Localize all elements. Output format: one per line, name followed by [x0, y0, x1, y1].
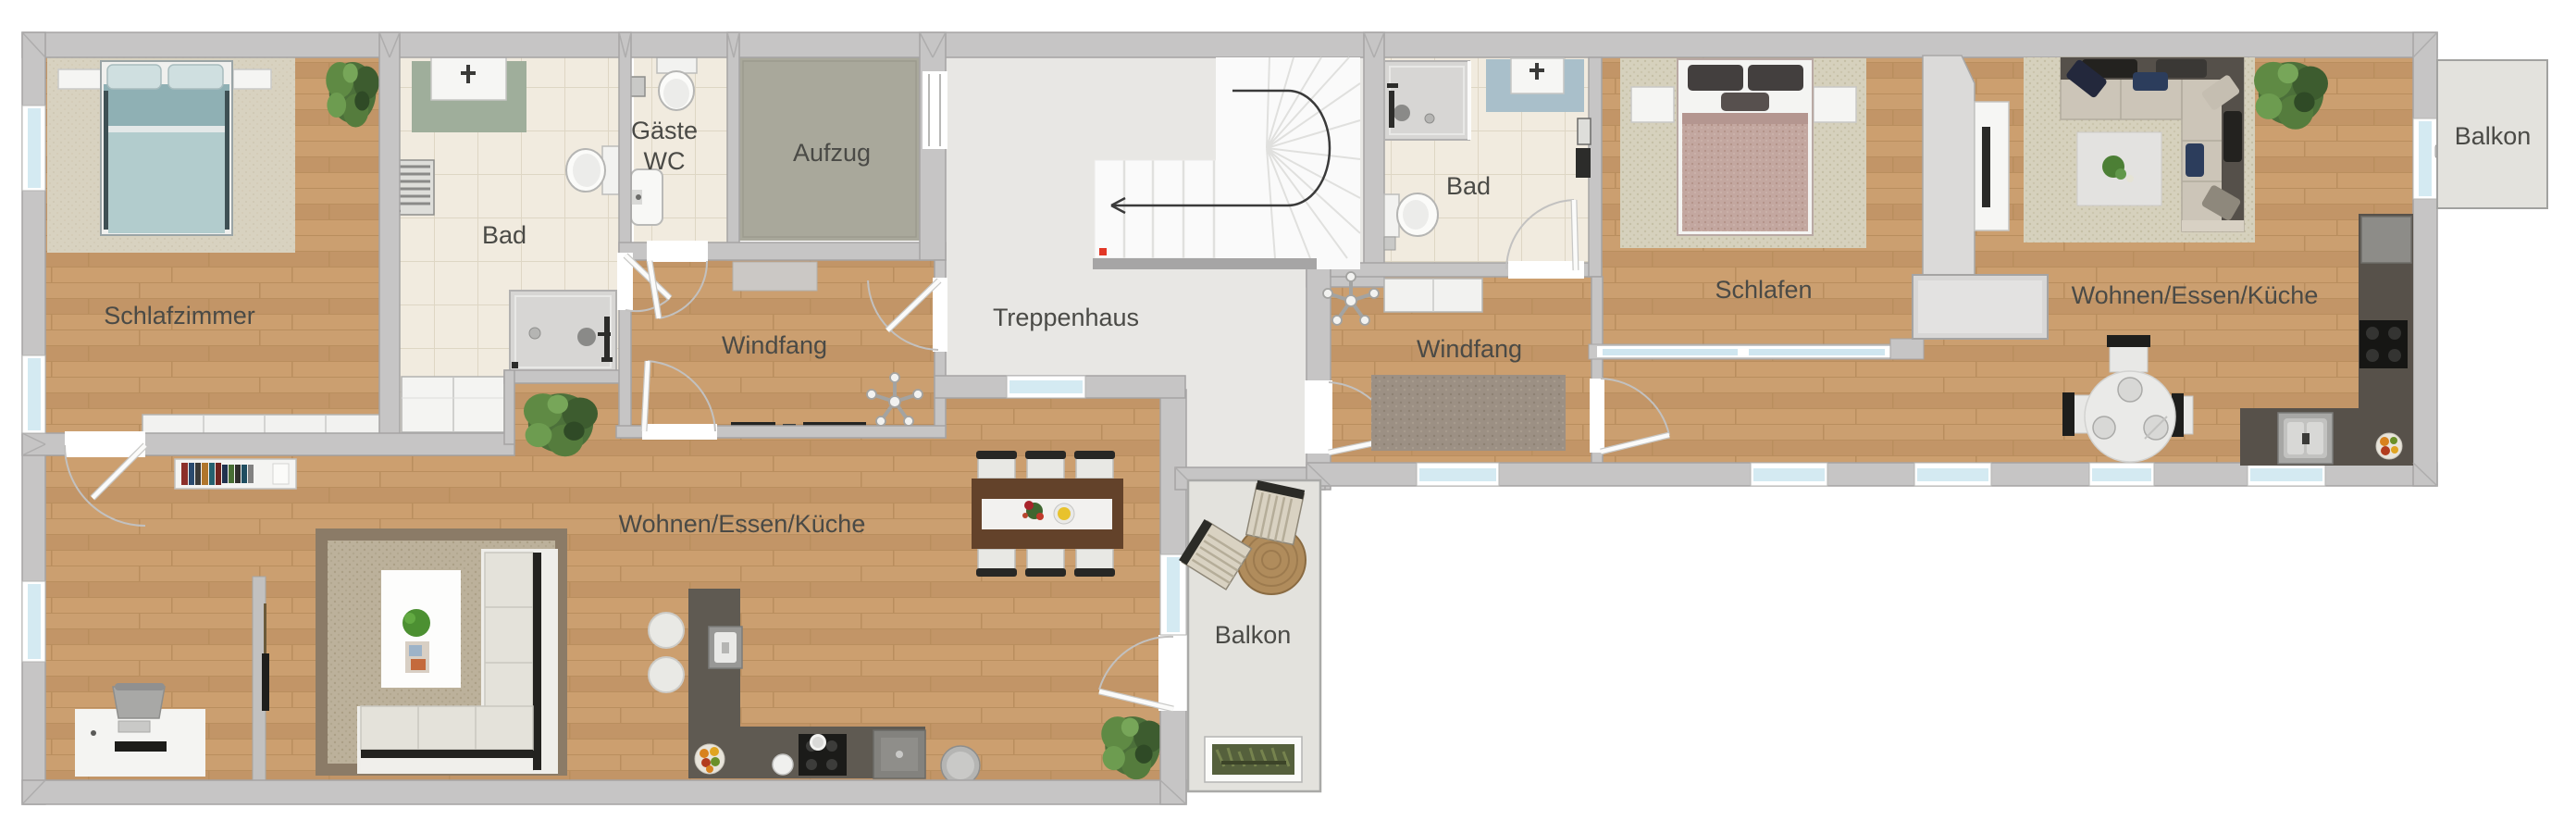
svg-text:Treppenhaus: Treppenhaus [993, 304, 1139, 331]
svg-text:Bad: Bad [482, 221, 526, 249]
svg-text:Bad: Bad [1446, 172, 1491, 200]
svg-text:Windfang: Windfang [722, 331, 827, 359]
svg-text:Aufzug: Aufzug [793, 139, 871, 167]
svg-text:Balkon: Balkon [1215, 621, 1292, 649]
svg-text:Windfang: Windfang [1417, 335, 1522, 363]
svg-text:WC: WC [644, 147, 686, 175]
svg-text:Schlafzimmer: Schlafzimmer [104, 302, 255, 329]
svg-text:Balkon: Balkon [2455, 122, 2532, 150]
svg-text:Schlafen: Schlafen [1715, 276, 1812, 304]
svg-text:Wohnen/Essen/Küche: Wohnen/Essen/Küche [2072, 281, 2319, 309]
svg-text:Gäste: Gäste [631, 117, 698, 144]
svg-text:Wohnen/Essen/Küche: Wohnen/Essen/Küche [619, 510, 866, 538]
